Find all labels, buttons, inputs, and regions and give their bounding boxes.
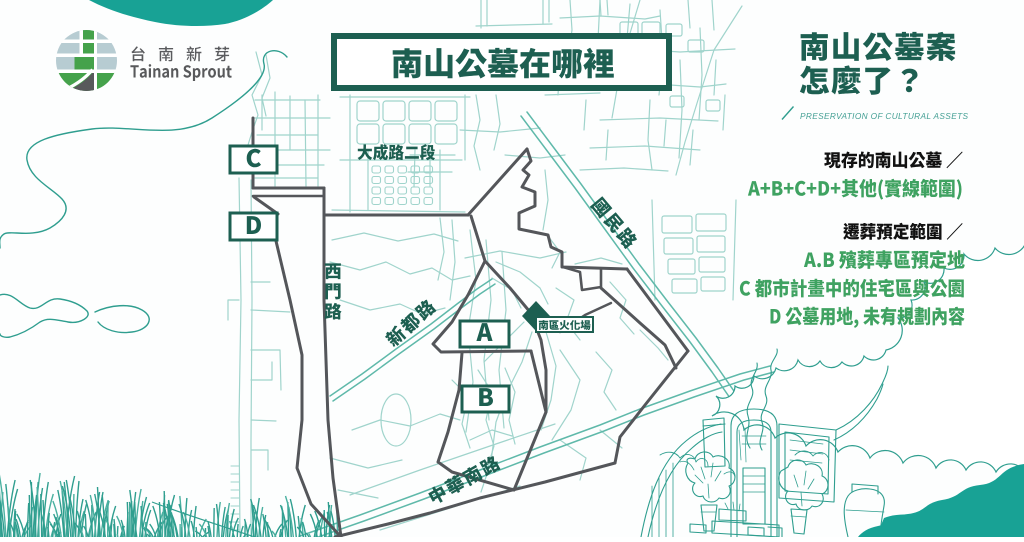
svg-text:PRESERVATION OF CULTURAL ASSET: PRESERVATION OF CULTURAL ASSETS — [800, 111, 968, 121]
